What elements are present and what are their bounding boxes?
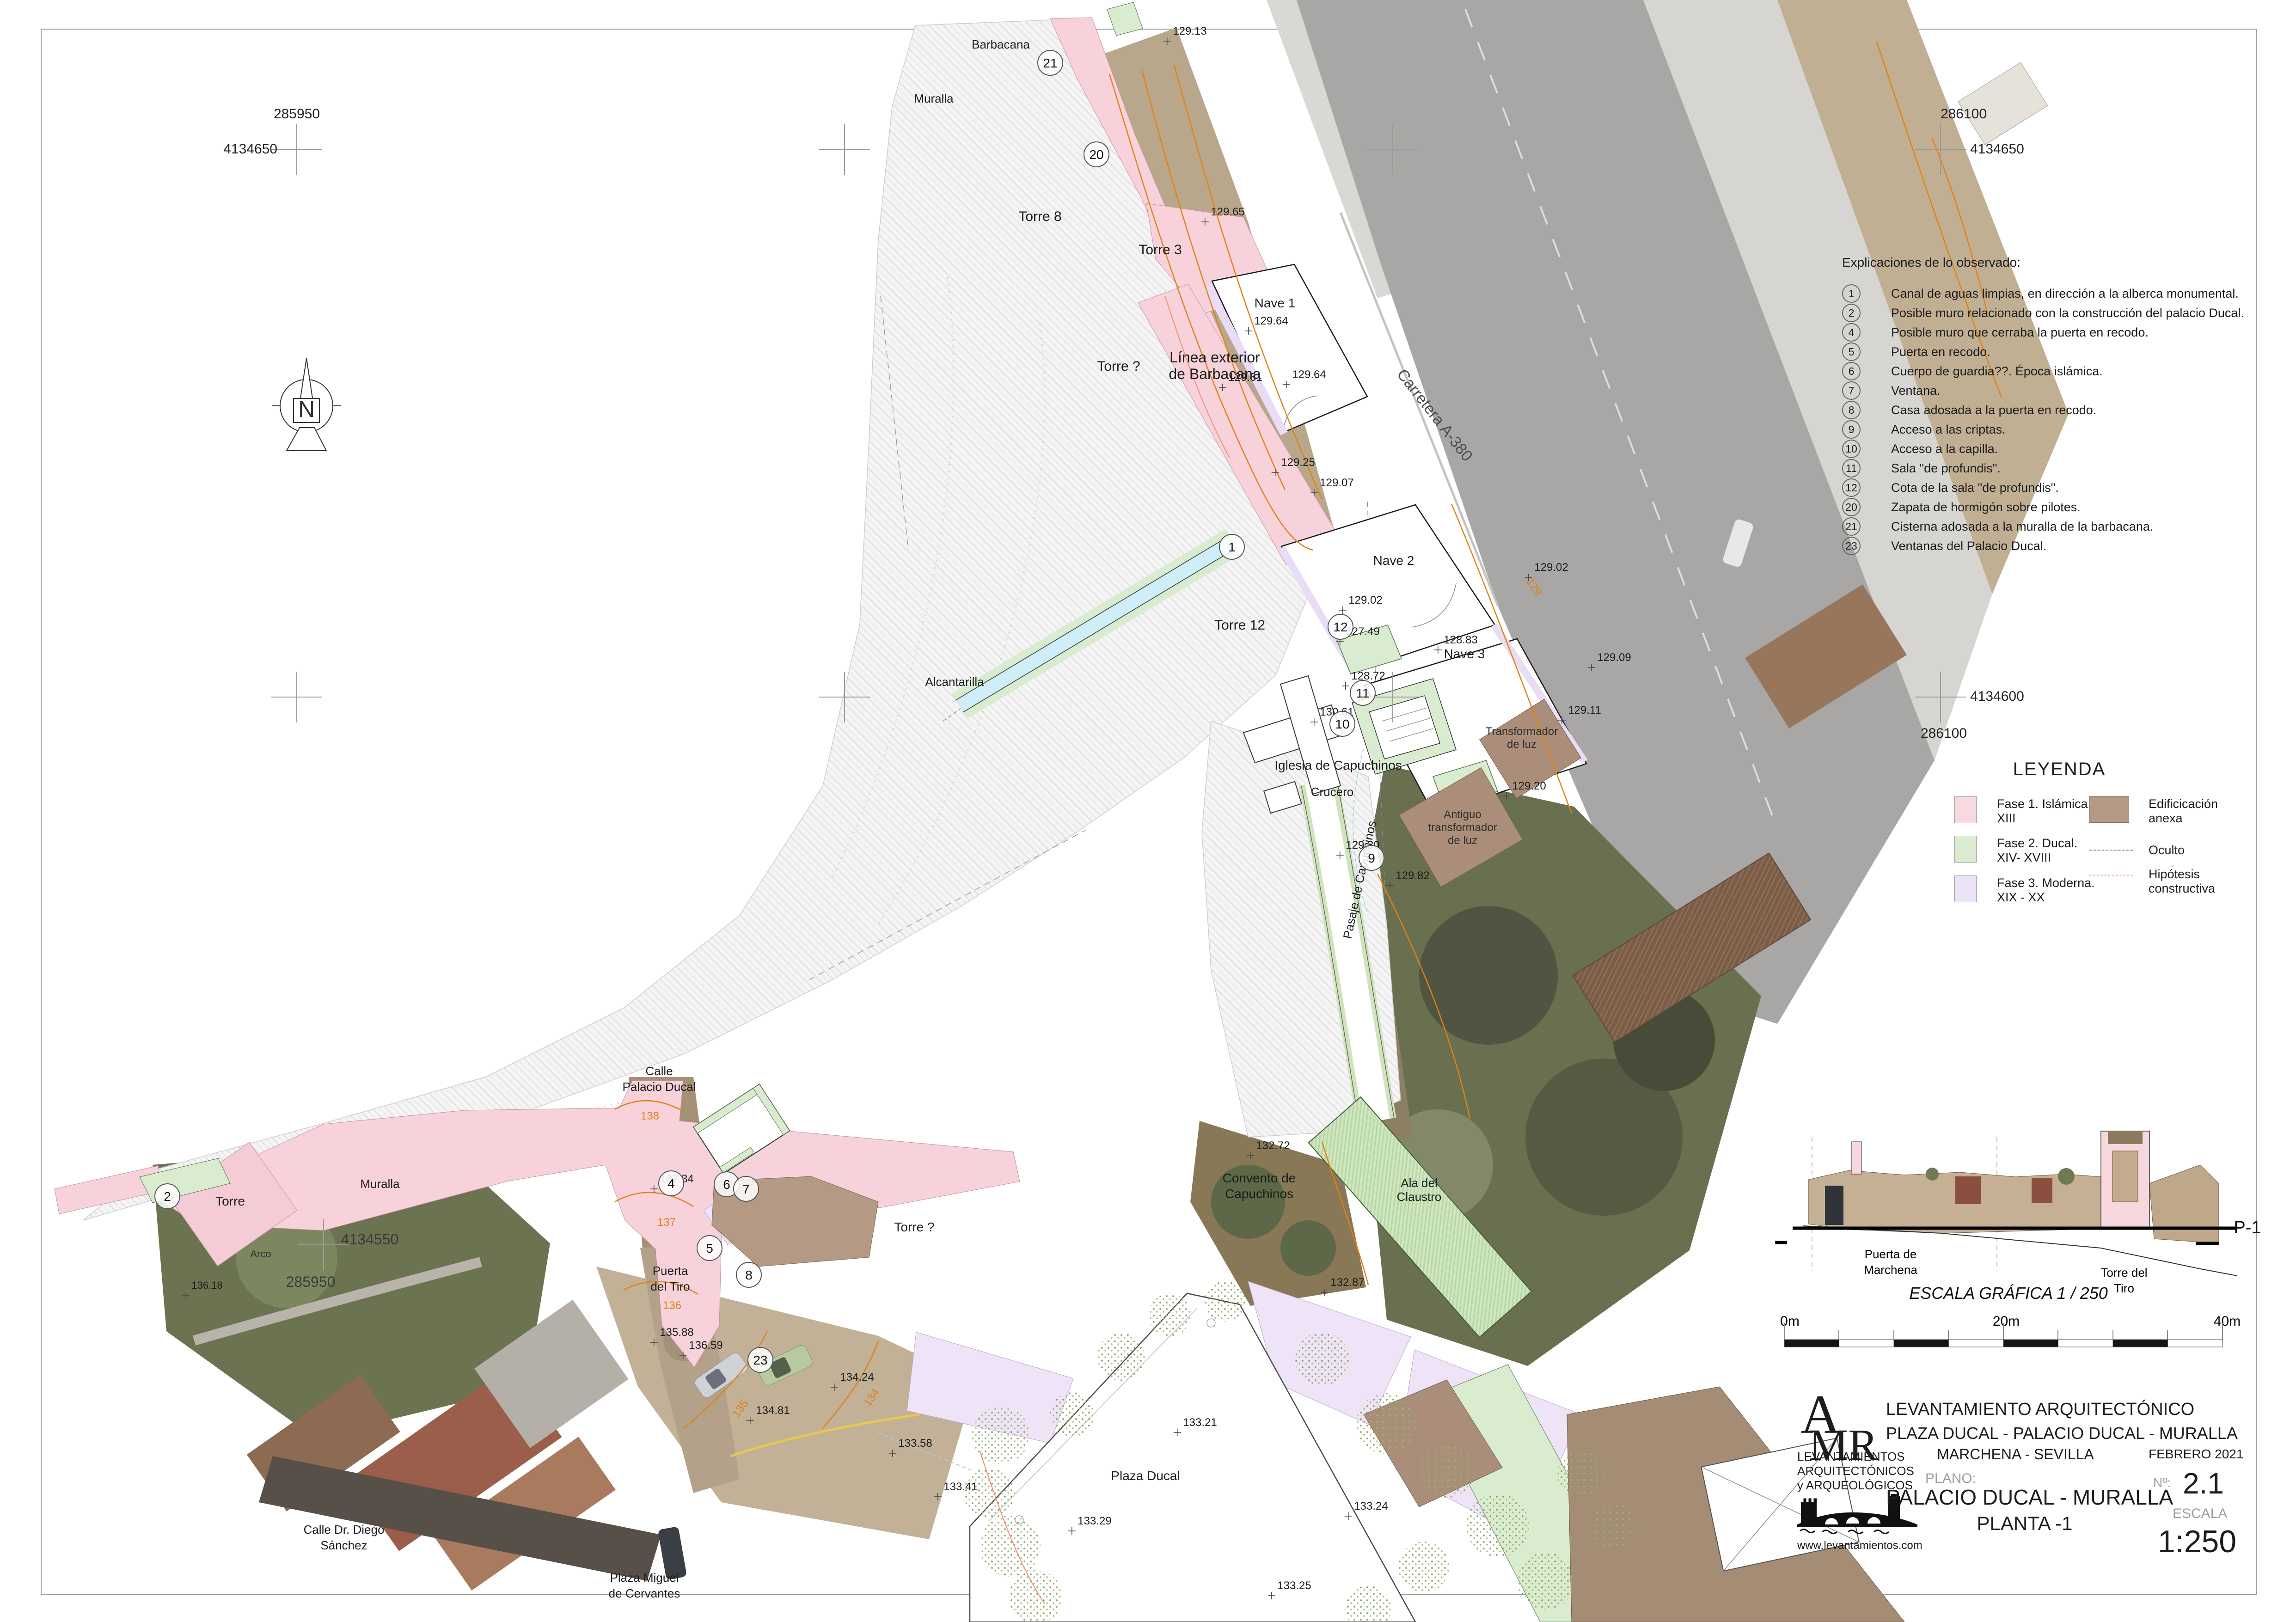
map-label: Torre 3 xyxy=(1139,242,1182,257)
observation-number-badge: 20 xyxy=(1842,498,1861,516)
grid-coordinate: 286100 xyxy=(1941,106,1987,122)
map-label: 129.25 xyxy=(1281,456,1315,469)
observation-text: Cisterna adosada a la muralla de la barb… xyxy=(1891,520,2153,534)
observation-item: 1 Canal de aguas limpias, en dirección a… xyxy=(1842,286,2249,301)
section-p1: P-1 Puerta de Marchena Torre del Tiro xyxy=(1775,1131,2261,1295)
map-label: Plaza Miguel xyxy=(610,1571,679,1585)
north-letter: N xyxy=(298,396,315,422)
map-label: 4134550 xyxy=(341,1231,399,1248)
observation-text: Posible muro relacionado con la construc… xyxy=(1891,306,2244,320)
grid-coordinate: 4134650 xyxy=(1970,141,2024,157)
observation-text: Puerta en recodo. xyxy=(1891,345,1990,359)
observations-panel: Explicaciones de lo observado: 1 Canal d… xyxy=(1842,255,2249,557)
map-label: 129.09 xyxy=(1597,651,1631,664)
map-label: 129.20 xyxy=(1512,780,1546,792)
map-label: de luz xyxy=(1448,834,1477,847)
legend-label-anexa: Edificicaciónanexa xyxy=(2149,797,2218,826)
map-label: 132.87 xyxy=(1330,1276,1364,1289)
observation-number-badge: 4 xyxy=(1842,323,1861,342)
observation-item: 9 Acceso a las criptas. xyxy=(1842,422,2249,437)
map-label: 138 xyxy=(641,1110,659,1122)
map-label: 129.02 xyxy=(1534,561,1568,574)
map-label: Barbacana xyxy=(972,37,1030,51)
map-label: Nave 3 xyxy=(1444,647,1485,661)
map-label: 128.83 xyxy=(1444,634,1477,646)
observations-list: 1 Canal de aguas limpias, en dirección a… xyxy=(1842,286,2249,554)
map-label: Arco xyxy=(250,1248,271,1260)
grid-cross xyxy=(819,124,870,175)
map-label: Calle xyxy=(645,1064,673,1078)
map-number-badge-text: 21 xyxy=(1043,56,1057,70)
elevation-point-cross xyxy=(1434,646,1442,654)
legend-swatch-fase3 xyxy=(1954,875,1977,902)
observation-number-badge: 6 xyxy=(1842,362,1861,380)
map-label: 128.72 xyxy=(1351,670,1385,682)
number-label: Nº: xyxy=(2153,1475,2171,1490)
project-location: MARCHENA - SEVILLA xyxy=(1886,1446,2145,1463)
map-number-badge-text: 9 xyxy=(1368,851,1375,865)
legend-label-fase1: Fase 1. Islámica.XIII xyxy=(1997,797,2091,826)
map-number-badge-text: 4 xyxy=(667,1176,675,1191)
observation-number-badge: 11 xyxy=(1842,459,1861,477)
plano-label: PLANO: xyxy=(1925,1471,1976,1487)
map-label: 133.41 xyxy=(943,1481,977,1493)
observation-item: 10 Acceso a la capilla. xyxy=(1842,441,2249,457)
legend-title: LEYENDA xyxy=(1992,759,2126,780)
observation-item: 11 Sala "de profundis". xyxy=(1842,460,2249,476)
map-label: 129.02 xyxy=(1348,594,1382,606)
legend-label-oculto: Oculto xyxy=(2149,843,2185,857)
map-label: Crucero xyxy=(1311,785,1353,799)
observation-text: Zapata de hormigón sobre pilotes. xyxy=(1891,500,2081,514)
map-label: Plaza Ducal xyxy=(1111,1469,1180,1483)
map-label: Iglesia de Capuchinos xyxy=(1274,758,1402,772)
map-label: de Cervantes xyxy=(609,1586,680,1600)
section-puerta-label: Puerta de xyxy=(1865,1247,1917,1261)
map-number-badge-text: 11 xyxy=(1356,686,1369,700)
map-label: 137 xyxy=(657,1216,676,1229)
map-label: Claustro xyxy=(1397,1190,1442,1204)
map-label: 134.24 xyxy=(840,1371,874,1383)
observation-number-badge: 5 xyxy=(1842,343,1861,361)
map-label: 129.13 xyxy=(1173,25,1206,37)
map-label: 133.25 xyxy=(1277,1579,1311,1592)
observation-number-badge: 23 xyxy=(1842,537,1861,555)
map-label: Antiguo xyxy=(1444,808,1481,821)
observation-item: 21 Cisterna adosada a la muralla de la b… xyxy=(1842,519,2249,534)
map-number-badge-text: 6 xyxy=(723,1177,730,1192)
observation-item: 2 Posible muro relacionado con la constr… xyxy=(1842,305,2249,321)
map-label: 133.58 xyxy=(898,1437,932,1450)
project-title-line1: LEVANTAMIENTO ARQUITECTÓNICO xyxy=(1886,1400,2182,1420)
observation-number-badge: 10 xyxy=(1842,440,1861,458)
project-date: FEBRERO 2021 xyxy=(2149,1447,2243,1462)
legend-swatch-fase2 xyxy=(1954,836,1977,863)
map-label: Alcantarilla xyxy=(925,675,984,689)
map-label: Sánchez xyxy=(320,1538,367,1552)
map-label: Nave 1 xyxy=(1255,296,1296,310)
map-label: 133.29 xyxy=(1078,1515,1111,1527)
map-number-badge-text: 8 xyxy=(745,1268,753,1282)
map-label: del Tiro xyxy=(650,1279,690,1293)
observation-text: Cuerpo de guardia??. Época islámica. xyxy=(1891,364,2103,379)
observation-text: Cota de la sala "de profundis". xyxy=(1891,481,2059,495)
map-label: Calle Dr. Diego xyxy=(304,1523,385,1536)
elevation-point-cross xyxy=(1342,682,1349,690)
legend-label-hipotesis: Hipótesisconstructiva xyxy=(2149,867,2215,896)
section-torre-label2: Tiro xyxy=(2114,1281,2134,1295)
grid-coordinate: 286100 xyxy=(1921,726,1967,741)
grid-coordinate: 4134600 xyxy=(1970,689,2024,704)
observation-number-badge: 9 xyxy=(1842,420,1861,439)
map-number-badge-text: 5 xyxy=(706,1241,713,1255)
legend-line-hipotesis xyxy=(2089,875,2133,876)
observation-number-badge: 1 xyxy=(1842,284,1861,303)
map-label: 133.21 xyxy=(1183,1416,1217,1429)
observation-item: 8 Casa adosada a la puerta en recodo. xyxy=(1842,402,2249,418)
map-label: Torre xyxy=(215,1194,245,1208)
map-label: 132.72 xyxy=(1256,1139,1290,1152)
map-number-badge-text: 20 xyxy=(1089,147,1103,162)
observation-text: Casa adosada a la puerta en recodo. xyxy=(1891,403,2096,417)
map-number-badge-text: 7 xyxy=(742,1182,750,1196)
scale-bar: ESCALA GRÁFICA 1 / 250 0m 20m 40m xyxy=(1780,1284,2241,1347)
map-number-badge-text: 1 xyxy=(1228,540,1236,554)
sheet-number: 2.1 xyxy=(2183,1466,2224,1500)
observation-text: Ventana. xyxy=(1891,384,1941,398)
map-label: Palacio Ducal xyxy=(623,1080,696,1094)
map-label: 129.82 xyxy=(1396,869,1429,882)
map-label: Nave 2 xyxy=(1373,553,1414,568)
scale-tick-0: 0m xyxy=(1780,1314,1800,1329)
grid-coordinate: 4134650 xyxy=(223,141,277,157)
map-label: Puerta xyxy=(653,1264,688,1278)
map-label: 133.24 xyxy=(1354,1500,1388,1512)
site-plan-canvas: N 28595041346502861004134650413460028610… xyxy=(0,0,2296,1622)
map-label: de luz xyxy=(1507,738,1537,751)
plano-title: PALACIO DUCAL - MURALLA xyxy=(1886,1485,2163,1510)
map-label: 129.11 xyxy=(1568,704,1601,716)
map-label: 135.88 xyxy=(660,1326,693,1339)
observation-number-badge: 8 xyxy=(1842,401,1861,419)
observation-number-badge: 12 xyxy=(1842,478,1861,497)
map-number-badge-text: 12 xyxy=(1333,620,1347,634)
observation-item: 6 Cuerpo de guardia??. Época islámica. xyxy=(1842,363,2249,379)
map-label: Torre ? xyxy=(1097,359,1140,374)
project-title-line2: PLAZA DUCAL - PALACIO DUCAL - MURALLA xyxy=(1886,1424,2182,1443)
drawing-sheet: N 28595041346502861004134650413460028610… xyxy=(0,0,2296,1622)
observation-text: Canal de aguas limpias, en dirección a l… xyxy=(1891,287,2239,301)
map-label: 136.18 xyxy=(191,1279,222,1291)
map-label: 129.64 xyxy=(1292,368,1326,381)
observation-text: Ventanas del Palacio Ducal. xyxy=(1891,539,2046,553)
scale-tick-40: 40m xyxy=(2214,1314,2241,1329)
observation-text: Acceso a la capilla. xyxy=(1891,442,1998,456)
website-url: www.levantamientos.com xyxy=(1797,1539,1923,1552)
legend-swatch-anexa xyxy=(2089,796,2129,823)
observation-item: 23 Ventanas del Palacio Ducal. xyxy=(1842,538,2249,554)
section-torre-label: Torre del xyxy=(2100,1266,2147,1279)
map-label: 136 xyxy=(663,1299,681,1312)
map-label: 129.61 xyxy=(1228,371,1262,384)
legend-label-fase2: Fase 2. Ducal.XIV- XVIII xyxy=(1997,836,2077,865)
map-label: Capuchinos xyxy=(1225,1187,1293,1201)
observation-text: Acceso a las criptas. xyxy=(1891,422,2006,437)
observation-item: 7 Ventana. xyxy=(1842,383,2249,398)
scale-title: ESCALA GRÁFICA 1 / 250 xyxy=(1909,1284,2108,1303)
map-number-badge-text: 23 xyxy=(753,1353,767,1367)
observation-item: 12 Cota de la sala "de profundis". xyxy=(1842,480,2249,496)
map-number-badge-text: 2 xyxy=(164,1189,171,1204)
legend-label-fase3: Fase 3. Moderna.XIX - XX xyxy=(1997,876,2095,905)
map-label: Convento de xyxy=(1223,1171,1296,1185)
grid-cross xyxy=(271,124,322,175)
observation-number-badge: 7 xyxy=(1842,381,1861,400)
observation-item: 20 Zapata de hormigón sobre pilotes. xyxy=(1842,499,2249,515)
map-label: 134.81 xyxy=(756,1404,790,1417)
observations-title: Explicaciones de lo observado: xyxy=(1842,255,2249,270)
map-label: Torre 12 xyxy=(1214,618,1265,633)
map-label: Transformador xyxy=(1486,725,1558,738)
north-arrow: N xyxy=(272,358,341,451)
plano-sheet: PLANTA -1 xyxy=(1886,1512,2163,1535)
section-puerta-label2: Marchena xyxy=(1864,1263,1917,1277)
map-label: Línea exterior xyxy=(1169,349,1260,366)
grid-coordinate: 285950 xyxy=(274,106,320,122)
observation-item: 5 Puerta en recodo. xyxy=(1842,344,2249,360)
observation-text: Sala "de profundis". xyxy=(1891,461,2001,476)
map-number-badge-text: 10 xyxy=(1335,717,1349,731)
map-label: Ala del xyxy=(1401,1176,1438,1190)
observation-text: Posible muro que cerraba la puerta en re… xyxy=(1891,325,2149,340)
map-label: Torre ? xyxy=(894,1220,934,1234)
map-label: 129.07 xyxy=(1320,477,1353,489)
legend-swatch-fase1 xyxy=(1954,796,1977,823)
observation-number-badge: 21 xyxy=(1842,517,1861,536)
map-label: Muralla xyxy=(360,1177,400,1191)
map-label: Muralla xyxy=(914,92,954,105)
map-label: Torre 8 xyxy=(1018,209,1061,224)
scale-value: 1:250 xyxy=(2158,1524,2236,1560)
observation-number-badge: 2 xyxy=(1842,304,1861,322)
map-label: transformador xyxy=(1428,821,1497,834)
grid-cross xyxy=(271,672,322,722)
map-label: 129.65 xyxy=(1211,206,1244,218)
map-label: 129.64 xyxy=(1254,315,1288,327)
map-label: 136.59 xyxy=(689,1339,722,1352)
scale-label: ESCALA xyxy=(2173,1506,2227,1522)
scale-tick-20: 20m xyxy=(1993,1314,2020,1329)
legend-line-oculto xyxy=(2089,850,2133,851)
map-label: 285950 xyxy=(286,1273,336,1290)
section-mark-label: P-1 xyxy=(2234,1218,2261,1237)
observation-item: 4 Posible muro que cerraba la puerta en … xyxy=(1842,324,2249,340)
